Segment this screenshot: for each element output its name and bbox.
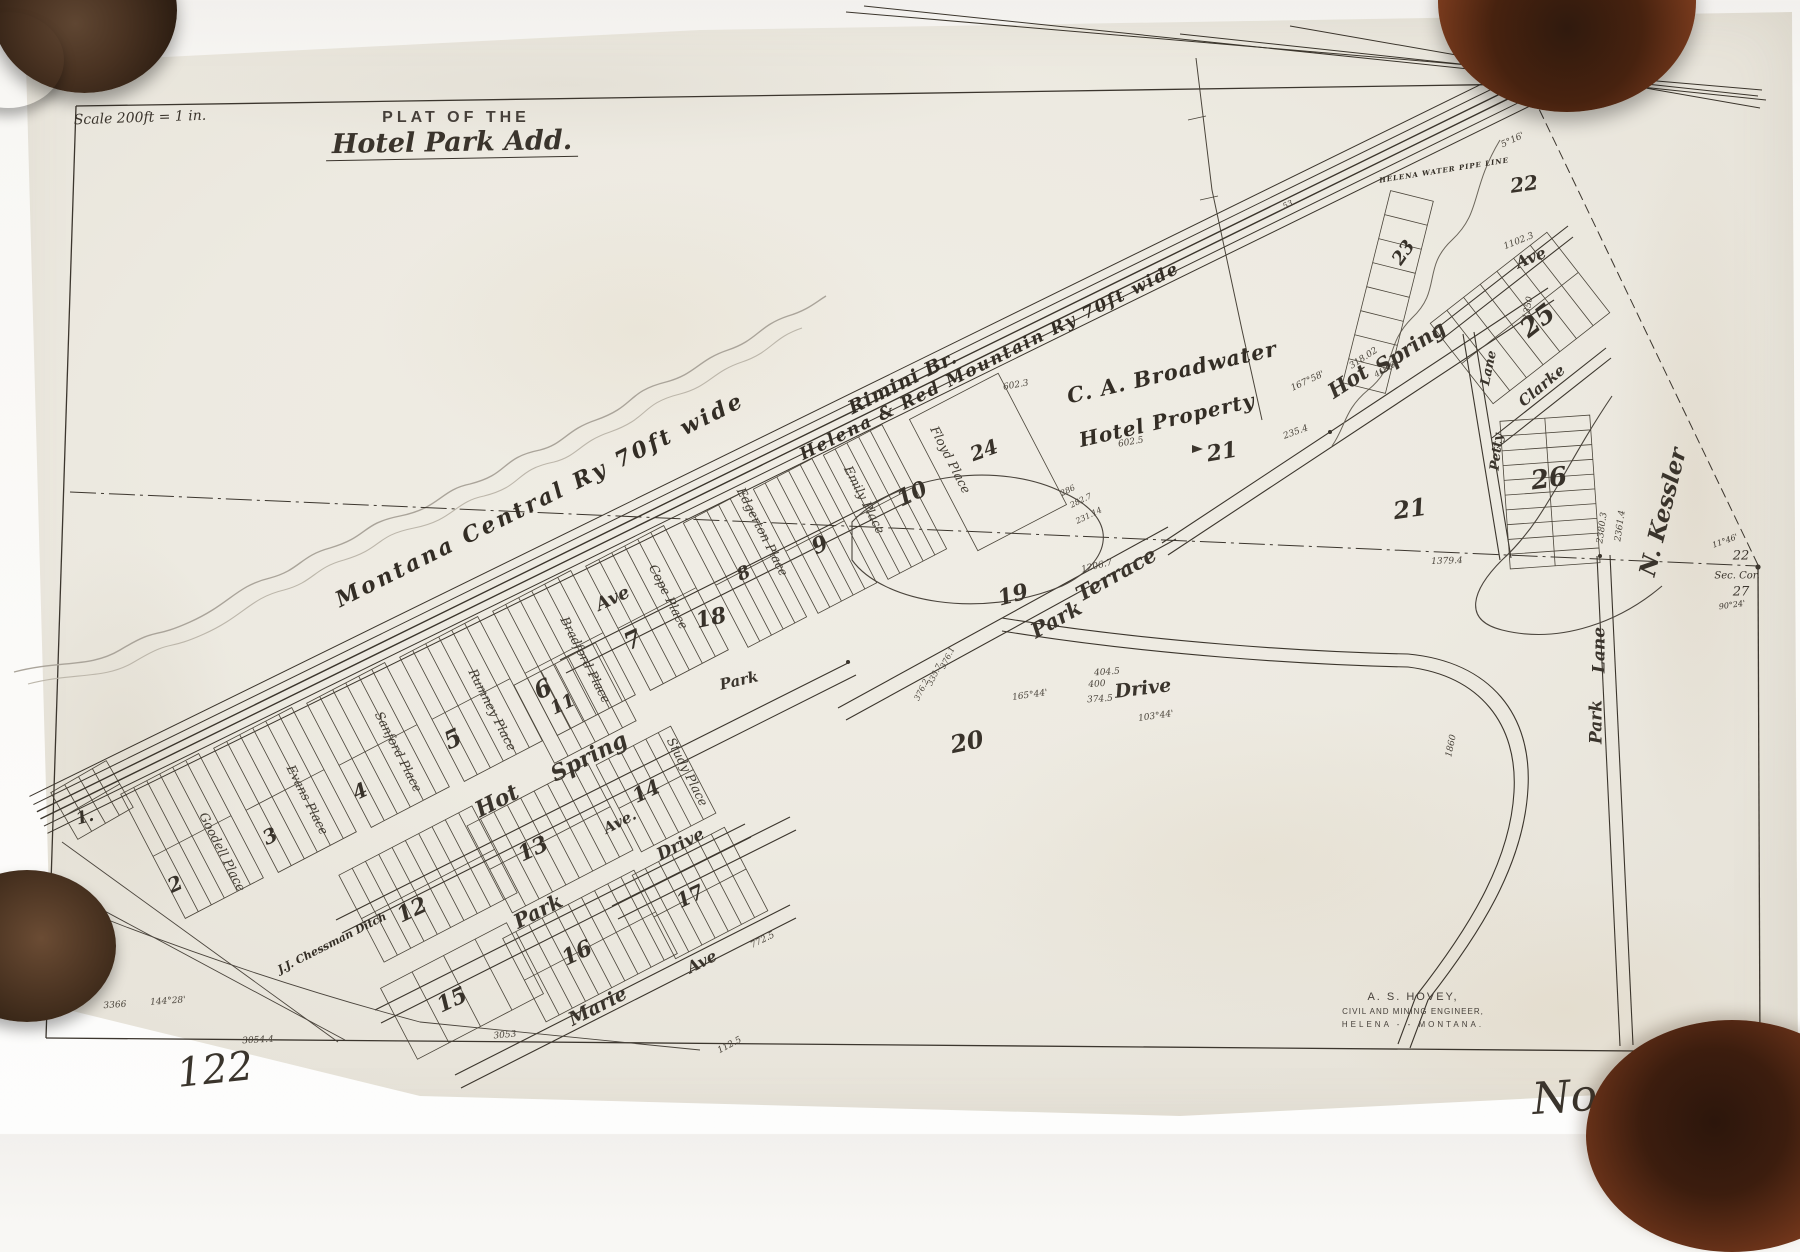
railroad-label: Montana Central Ry 70ft wide xyxy=(332,389,748,611)
section-corner-number: 27 xyxy=(1733,585,1750,600)
section-corner-block-ref: 22 xyxy=(1733,549,1750,564)
measurement-label: 2361.4 xyxy=(1614,510,1627,542)
measurement-label: 165°44' xyxy=(1012,689,1049,703)
surveyor-title: CIVIL AND MINING ENGINEER, xyxy=(1342,1007,1484,1016)
measurement-label: 53 xyxy=(1282,199,1295,211)
street-label: Drive xyxy=(654,826,707,864)
plat-title-line1: PLAT OF THE xyxy=(382,110,530,126)
measurement-label: 103°44' xyxy=(1138,710,1175,724)
measurement-label: 602.5 xyxy=(1118,436,1145,449)
place-label: Study Place xyxy=(664,736,709,808)
label-layer: Scale 200ft = 1 in. PLAT OF THE Hotel Pa… xyxy=(0,0,1800,1134)
place-label: Rumney Place xyxy=(466,667,518,753)
block-number: 24 xyxy=(967,436,1000,464)
street-label: Lane xyxy=(1592,627,1609,673)
section-corner-label: Sec. Cor. xyxy=(1714,571,1759,582)
place-label: Emily Place xyxy=(842,464,887,536)
block-number: 7 xyxy=(620,626,645,655)
place-label: Sanford Place xyxy=(372,710,423,794)
street-label: Marie xyxy=(566,984,630,1029)
surveyor-stamp: A. S. HOVEY, CIVIL AND MINING ENGINEER, … xyxy=(1342,991,1484,1029)
photo-of-plat-map: { "colors":{"ink":"#3a342c","pencil":"#a… xyxy=(0,0,1800,1134)
measurement-label: 286 xyxy=(1059,484,1076,498)
scale-note: Scale 200ft = 1 in. xyxy=(74,109,207,128)
measurement-label: 1379.4 xyxy=(1431,557,1463,567)
street-label: Ave xyxy=(593,583,632,614)
block-number: 3 xyxy=(259,824,280,848)
measurement-label: 5°16' xyxy=(1500,132,1526,150)
block-number: 13 xyxy=(514,833,551,866)
block-number: 14 xyxy=(629,776,663,806)
measurement-label: 235.4 xyxy=(1282,424,1309,441)
street-label: Lane xyxy=(1479,349,1499,386)
street-label: Ave. xyxy=(601,807,639,836)
block-number: 16 xyxy=(558,937,595,970)
place-label: Floyd Place xyxy=(928,424,973,495)
measurement-label: 2380.3 xyxy=(1596,512,1609,544)
place-label: Goodell Place xyxy=(197,811,247,894)
block-number: 21 xyxy=(1392,495,1428,523)
street-label: Hot xyxy=(1324,360,1372,401)
block-number: 21 xyxy=(1205,439,1239,466)
measurement-label: 404.5 xyxy=(1094,668,1120,679)
block-number: 23 xyxy=(1389,238,1418,269)
street-label: Park xyxy=(1027,597,1085,642)
block-number: 17 xyxy=(673,881,707,911)
sheet-number-bottom-left: 122 xyxy=(175,1046,255,1094)
measurement-label: 112.5 xyxy=(717,1036,744,1056)
block-number: 1. xyxy=(74,807,96,828)
block-number: 20 xyxy=(948,727,986,757)
street-label: Spring xyxy=(547,728,631,785)
street-label: Clarke xyxy=(1516,363,1568,410)
block-number: 22 xyxy=(1509,172,1539,196)
block-number: 2 xyxy=(164,872,185,896)
measurement-label: 772.5 xyxy=(749,931,776,951)
block-number: 18 xyxy=(694,604,729,632)
block-number: 26 xyxy=(1529,464,1568,495)
surveyor-location: HELENA - - MONTANA. xyxy=(1342,1020,1484,1029)
street-label: Park xyxy=(1589,700,1606,744)
surveyor-name: A. S. HOVEY, xyxy=(1342,991,1484,1003)
block-number: 19 xyxy=(995,580,1030,609)
property-label: J.J. Chessman Ditch xyxy=(276,911,388,975)
measurement-label: 602.3 xyxy=(1003,379,1030,392)
street-label: N. Kessler xyxy=(1636,446,1690,579)
plat-title-name: Hotel Park Add. xyxy=(326,127,579,161)
block-number: 8 xyxy=(735,563,754,585)
block-number: 25 xyxy=(1516,300,1561,343)
measurement-label: 400 xyxy=(1088,680,1106,690)
street-label: Ave xyxy=(1514,245,1549,272)
measurement-label: 282.7 xyxy=(1069,492,1093,509)
measurement-label: 3366 xyxy=(103,1001,126,1012)
measurement-label: 376.2 xyxy=(913,678,930,702)
block-number: 5 xyxy=(440,725,465,754)
street-label: Petty xyxy=(1489,433,1506,471)
street-label: Drive xyxy=(1114,676,1173,702)
section-corner-angle-bottom: 90°24' xyxy=(1718,599,1746,612)
street-label: Ave xyxy=(684,948,719,976)
measurement-label: 1860 xyxy=(1445,734,1459,758)
block-number: 9 xyxy=(808,532,831,558)
measurement-label: 3054.4 xyxy=(242,1036,274,1047)
measurement-label: 231.14 xyxy=(1075,506,1104,525)
place-label: Cope Place xyxy=(646,563,689,632)
place-label: Evans Place xyxy=(284,763,330,837)
measurement-label: 374.5 xyxy=(1087,695,1113,706)
measurement-label: 144°28' xyxy=(150,996,186,1007)
street-label: Hot xyxy=(472,781,523,821)
block-number: 10 xyxy=(893,478,930,511)
block-number: 4 xyxy=(349,779,370,803)
railroad-label: HELENA WATER PIPE LINE xyxy=(1379,156,1510,183)
measurement-label: 3053 xyxy=(493,1031,517,1042)
street-label: Park xyxy=(718,669,759,692)
measurement-label: 167°58' xyxy=(1290,370,1326,393)
block-number: 12 xyxy=(393,894,430,927)
street-label: Park xyxy=(510,890,565,931)
section-corner-angle-top: 11°46' xyxy=(1711,532,1739,550)
block-number: 15 xyxy=(433,984,470,1017)
measurement-label: 376.1 xyxy=(939,646,956,670)
